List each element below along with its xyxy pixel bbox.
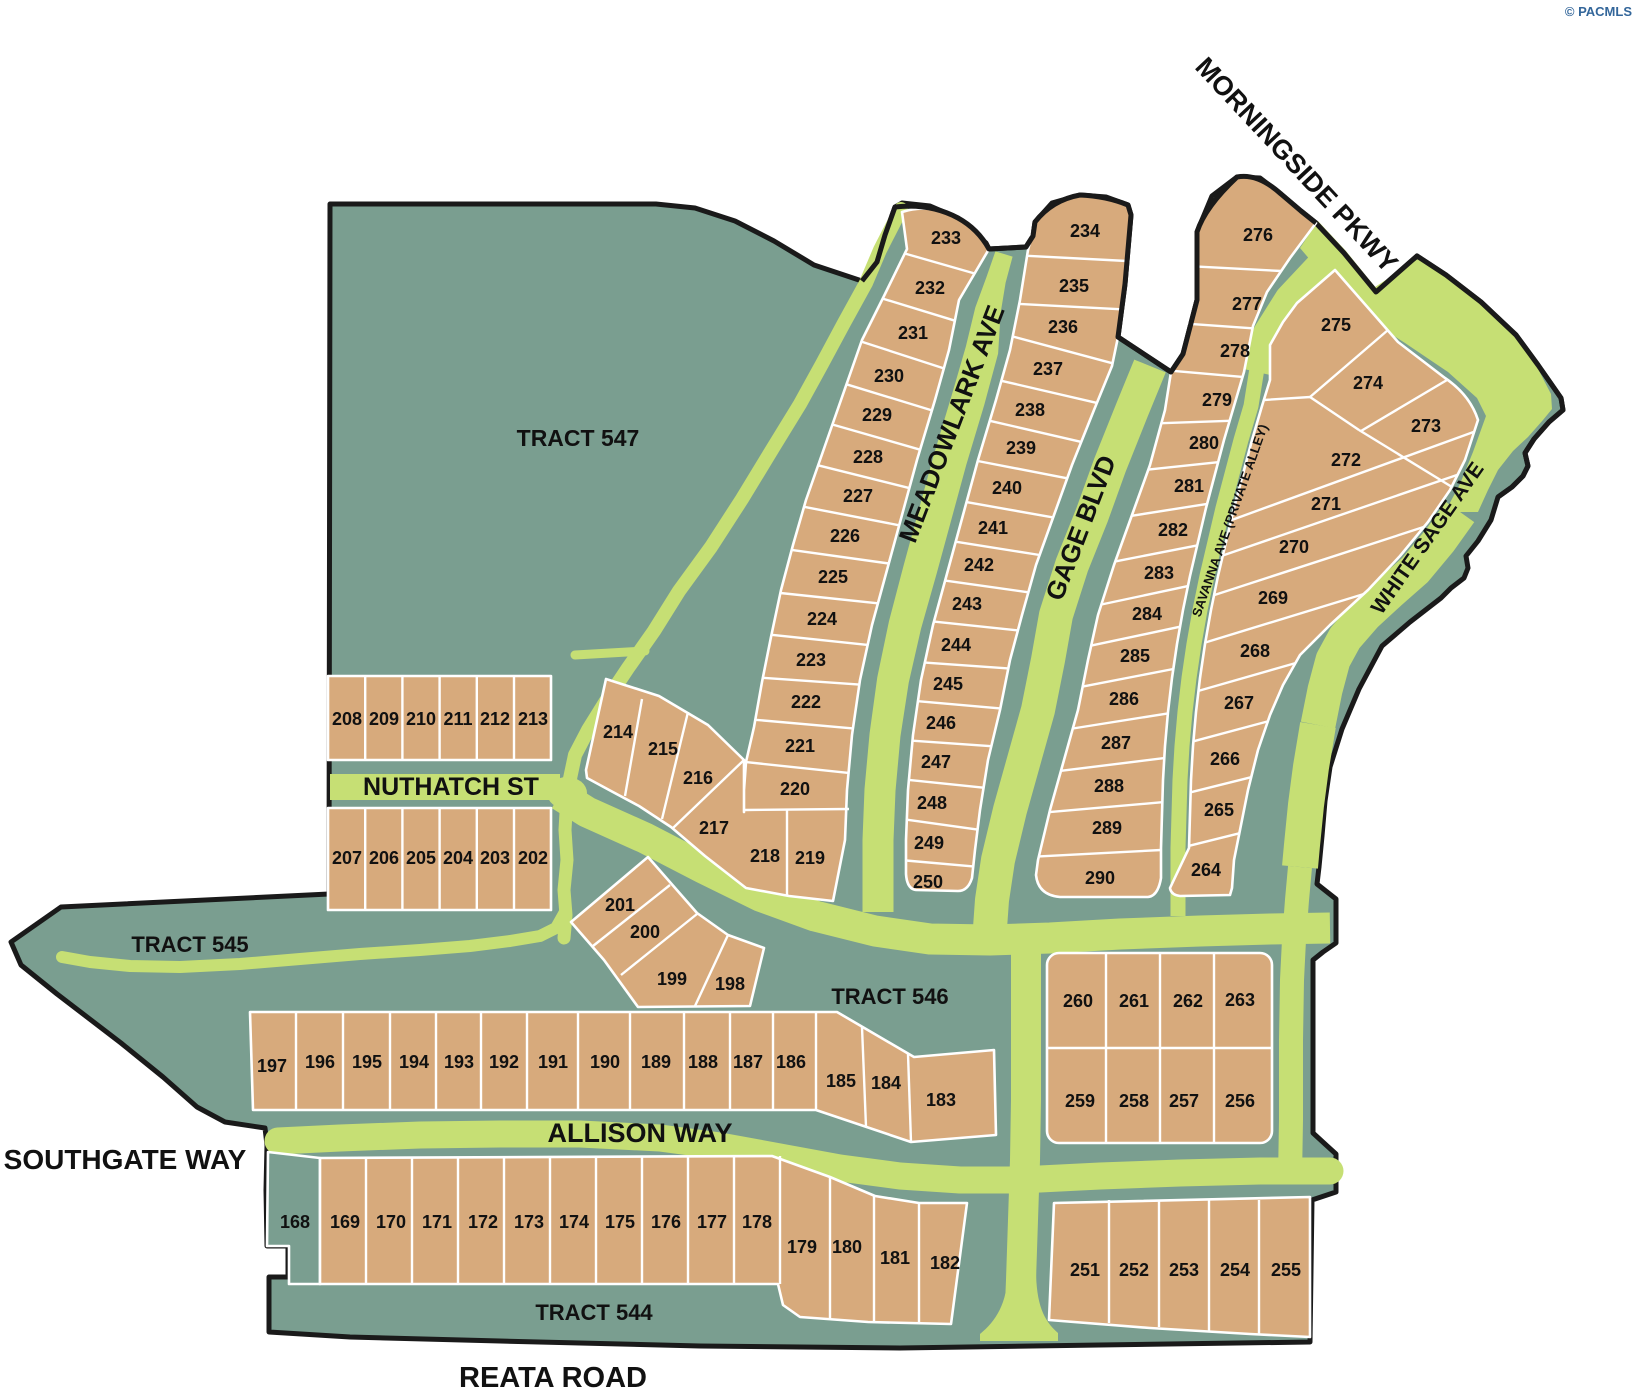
svg-text:196: 196 (305, 1052, 335, 1072)
svg-text:180: 180 (832, 1237, 862, 1257)
svg-text:283: 283 (1144, 563, 1174, 583)
svg-text:269: 269 (1258, 588, 1288, 608)
svg-text:172: 172 (468, 1212, 498, 1232)
svg-text:197: 197 (257, 1056, 287, 1076)
svg-text:225: 225 (818, 567, 848, 587)
svg-text:REATA ROAD: REATA ROAD (459, 1362, 647, 1391)
svg-text:235: 235 (1059, 276, 1089, 296)
svg-text:273: 273 (1411, 416, 1441, 436)
svg-text:170: 170 (376, 1212, 406, 1232)
svg-text:258: 258 (1119, 1091, 1149, 1111)
svg-text:211: 211 (443, 709, 472, 729)
svg-text:254: 254 (1220, 1260, 1250, 1280)
svg-text:219: 219 (795, 848, 825, 868)
svg-text:276: 276 (1243, 225, 1273, 245)
svg-text:234: 234 (1070, 221, 1100, 241)
svg-text:191: 191 (538, 1052, 568, 1072)
svg-text:278: 278 (1220, 341, 1250, 361)
svg-text:183: 183 (926, 1090, 956, 1110)
svg-text:TRACT 545: TRACT 545 (131, 932, 248, 957)
svg-text:232: 232 (915, 278, 945, 298)
svg-text:282: 282 (1158, 520, 1188, 540)
svg-text:287: 287 (1101, 733, 1131, 753)
svg-text:251: 251 (1070, 1260, 1100, 1280)
svg-text:212: 212 (480, 709, 510, 729)
svg-text:193: 193 (444, 1052, 474, 1072)
svg-text:284: 284 (1132, 604, 1162, 624)
svg-text:218: 218 (750, 846, 780, 866)
svg-text:NUTHATCH ST: NUTHATCH ST (363, 773, 539, 801)
svg-text:244: 244 (941, 635, 971, 655)
svg-text:187: 187 (733, 1052, 763, 1072)
svg-text:227: 227 (843, 486, 873, 506)
svg-text:257: 257 (1169, 1091, 1199, 1111)
svg-text:ALLISON WAY: ALLISON WAY (547, 1118, 732, 1148)
svg-text:217: 217 (699, 818, 729, 838)
svg-text:189: 189 (641, 1052, 671, 1072)
svg-text:261: 261 (1119, 991, 1149, 1011)
svg-text:© PACMLS: © PACMLS (1565, 4, 1632, 19)
svg-text:207: 207 (332, 848, 362, 868)
svg-text:181: 181 (880, 1248, 910, 1268)
svg-text:277: 277 (1232, 294, 1262, 314)
svg-text:245: 245 (933, 674, 963, 694)
svg-text:173: 173 (514, 1212, 544, 1232)
svg-text:247: 247 (921, 752, 951, 772)
svg-text:231: 231 (898, 323, 928, 343)
svg-text:228: 228 (853, 447, 883, 467)
svg-text:250: 250 (913, 872, 943, 892)
svg-text:184: 184 (871, 1073, 901, 1093)
svg-text:226: 226 (830, 526, 860, 546)
svg-text:177: 177 (697, 1212, 727, 1232)
svg-text:201: 201 (605, 895, 635, 915)
svg-text:222: 222 (791, 692, 821, 712)
svg-text:229: 229 (862, 405, 892, 425)
svg-text:221: 221 (785, 736, 815, 756)
svg-text:192: 192 (489, 1052, 519, 1072)
svg-text:176: 176 (651, 1212, 681, 1232)
svg-text:279: 279 (1202, 390, 1232, 410)
svg-text:TRACT 546: TRACT 546 (831, 984, 948, 1009)
svg-text:216: 216 (683, 768, 713, 788)
svg-text:246: 246 (926, 713, 956, 733)
svg-text:224: 224 (807, 609, 837, 629)
svg-text:194: 194 (399, 1052, 429, 1072)
svg-text:185: 185 (826, 1071, 856, 1091)
svg-text:TRACT 544: TRACT 544 (535, 1300, 653, 1325)
svg-text:220: 220 (780, 779, 810, 799)
svg-text:238: 238 (1015, 400, 1045, 420)
svg-text:179: 179 (787, 1237, 817, 1257)
svg-text:203: 203 (480, 848, 510, 868)
svg-text:262: 262 (1173, 991, 1203, 1011)
svg-text:272: 272 (1331, 450, 1361, 470)
svg-text:263: 263 (1225, 990, 1255, 1010)
svg-text:285: 285 (1120, 646, 1150, 666)
svg-text:243: 243 (952, 594, 982, 614)
svg-text:286: 286 (1109, 689, 1139, 709)
svg-text:174: 174 (559, 1212, 589, 1232)
svg-text:205: 205 (406, 848, 436, 868)
svg-text:260: 260 (1063, 991, 1093, 1011)
svg-text:275: 275 (1321, 315, 1351, 335)
svg-text:215: 215 (648, 739, 678, 759)
svg-text:171: 171 (422, 1212, 452, 1232)
svg-text:241: 241 (978, 518, 1008, 538)
svg-text:271: 271 (1311, 494, 1341, 514)
svg-text:239: 239 (1006, 438, 1036, 458)
svg-text:182: 182 (930, 1253, 960, 1273)
svg-text:190: 190 (590, 1052, 620, 1072)
svg-text:255: 255 (1271, 1260, 1301, 1280)
svg-text:290: 290 (1085, 868, 1115, 888)
svg-text:209: 209 (369, 709, 399, 729)
svg-text:214: 214 (603, 722, 633, 742)
svg-text:280: 280 (1189, 433, 1219, 453)
svg-text:204: 204 (443, 848, 473, 868)
svg-text:210: 210 (406, 709, 436, 729)
svg-text:236: 236 (1048, 317, 1078, 337)
svg-text:198: 198 (715, 974, 745, 994)
svg-text:233: 233 (931, 228, 961, 248)
svg-text:199: 199 (657, 969, 687, 989)
svg-text:266: 266 (1210, 749, 1240, 769)
svg-text:223: 223 (796, 650, 826, 670)
svg-text:248: 248 (917, 793, 947, 813)
svg-text:252: 252 (1119, 1260, 1149, 1280)
svg-text:242: 242 (964, 555, 994, 575)
svg-text:188: 188 (688, 1052, 718, 1072)
svg-text:253: 253 (1169, 1260, 1199, 1280)
svg-text:281: 281 (1174, 476, 1204, 496)
svg-text:274: 274 (1353, 373, 1383, 393)
svg-text:288: 288 (1094, 776, 1124, 796)
svg-text:200: 200 (630, 922, 660, 942)
svg-text:186: 186 (776, 1052, 806, 1072)
svg-text:289: 289 (1092, 818, 1122, 838)
svg-text:237: 237 (1033, 359, 1063, 379)
svg-text:206: 206 (369, 848, 399, 868)
svg-text:268: 268 (1240, 641, 1270, 661)
svg-text:264: 264 (1191, 860, 1221, 880)
svg-text:249: 249 (914, 833, 944, 853)
svg-text:259: 259 (1065, 1091, 1095, 1111)
svg-text:267: 267 (1224, 693, 1254, 713)
svg-text:168: 168 (280, 1212, 310, 1232)
svg-text:202: 202 (518, 848, 548, 868)
svg-text:TRACT 547: TRACT 547 (517, 425, 640, 451)
svg-text:208: 208 (332, 709, 362, 729)
svg-text:178: 178 (742, 1212, 772, 1232)
svg-text:270: 270 (1279, 537, 1309, 557)
svg-text:265: 265 (1204, 800, 1234, 820)
svg-text:175: 175 (605, 1212, 635, 1232)
svg-text:SOUTHGATE WAY: SOUTHGATE WAY (4, 1144, 247, 1175)
svg-text:213: 213 (518, 709, 548, 729)
svg-text:169: 169 (330, 1212, 360, 1232)
svg-text:256: 256 (1225, 1091, 1255, 1111)
svg-text:230: 230 (874, 366, 904, 386)
svg-text:195: 195 (352, 1052, 382, 1072)
svg-text:240: 240 (992, 478, 1022, 498)
